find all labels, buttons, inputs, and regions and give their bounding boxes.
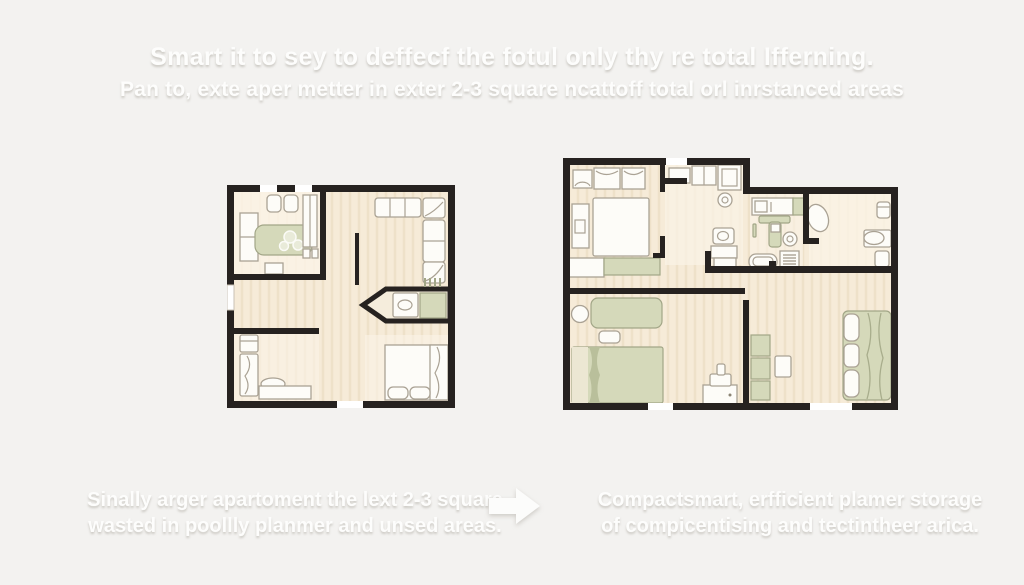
arrow-right-icon <box>489 487 541 525</box>
page-title: Smart it to sey to deffecf the fotul onl… <box>0 42 1024 72</box>
page: { "header": { "title": "Smart it to sey … <box>0 0 1024 585</box>
main-bedroom-furniture <box>385 345 448 400</box>
page-subtitle: Pan to, exte aper metter in exter 2-3 sq… <box>0 77 1024 102</box>
left-caption-line1: Sinally arger apartoment the lext 2-3 sq… <box>87 489 503 511</box>
left-caption-line2: wasted in poollly planmer and unsed area… <box>88 515 501 537</box>
right-plan-caption: Compactsmart, erfficient plamer storage … <box>590 487 990 539</box>
single-bed <box>591 298 662 328</box>
header: Smart it to sey to deffecf the fotul onl… <box>0 42 1024 102</box>
left-floor-plan <box>227 185 455 408</box>
toilet <box>713 228 734 244</box>
left-plan-caption: Sinally arger apartoment the lext 2-3 sq… <box>80 487 510 539</box>
sofa <box>751 335 770 356</box>
right-caption-line2: of compicentising and tectintheer arica. <box>601 515 979 537</box>
right-floor-plan <box>563 158 898 410</box>
bed-master <box>593 198 649 256</box>
sofa <box>375 198 421 217</box>
right-caption-line1: Compactsmart, erfficient plamer storage <box>598 489 983 511</box>
